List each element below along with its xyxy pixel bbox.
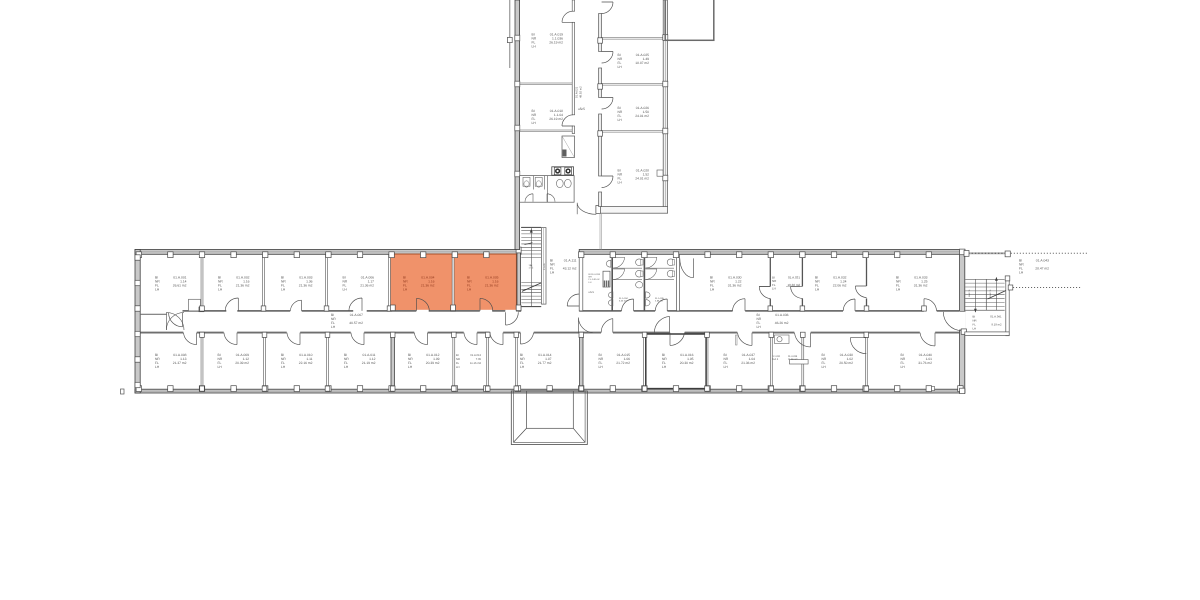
svg-text:NR: NR: [589, 276, 593, 279]
svg-text:20.39 m2: 20.39 m2: [426, 361, 440, 365]
svg-text:20.30 m2: 20.30 m2: [680, 361, 694, 365]
svg-text:01.A.031: 01.A.031: [788, 276, 800, 280]
svg-text:21.36 m2: 21.36 m2: [360, 284, 374, 288]
svg-text:LH: LH: [757, 325, 762, 329]
svg-text:21.36 m2: 21.36 m2: [421, 284, 435, 288]
svg-text:LH: LH: [662, 365, 667, 369]
svg-text:21.36 m2: 21.36 m2: [741, 361, 755, 365]
svg-text:LH: LH: [973, 327, 977, 331]
svg-text:LH: LH: [281, 288, 286, 292]
svg-text:26.19 m2: 26.19 m2: [549, 117, 563, 121]
svg-text:21.36 m2: 21.36 m2: [485, 284, 499, 288]
svg-text:LH: LH: [155, 288, 160, 292]
svg-text:LH: LH: [331, 325, 336, 329]
svg-text:01.A.013: 01.A.013: [470, 354, 481, 357]
svg-text:LH: LH: [467, 288, 472, 292]
svg-text:FL 4.40 m2: FL 4.40 m2: [589, 278, 601, 281]
svg-text:LH: LH: [218, 365, 223, 369]
svg-text:1.1.031: 1.1.031: [773, 355, 781, 358]
svg-text:26.61 m2: 26.61 m2: [173, 284, 187, 288]
svg-text:LH: LH: [532, 121, 537, 125]
svg-text:24.01 m2: 24.01 m2: [635, 177, 649, 181]
svg-text:u5c5: u5c5: [588, 291, 594, 294]
svg-text:22.06 m2: 22.06 m2: [833, 284, 847, 288]
svg-text:LH: LH: [155, 365, 160, 369]
svg-text:LH: LH: [618, 181, 623, 185]
svg-text:20.50 m2: 20.50 m2: [839, 361, 853, 365]
svg-text:LH: LH: [599, 365, 604, 369]
svg-text:LH: LH: [550, 271, 555, 275]
svg-text:21.36 m2: 21.36 m2: [299, 284, 313, 288]
svg-text:49.92 m2: 49.92 m2: [579, 86, 583, 98]
svg-text:BI 01.A.033: BI 01.A.033: [589, 273, 601, 276]
svg-text:LH: LH: [344, 365, 349, 369]
svg-text:21.77 m2: 21.77 m2: [538, 361, 552, 365]
svg-text:21.72 m2: 21.72 m2: [616, 361, 630, 365]
svg-text:LH: LH: [456, 366, 459, 369]
svg-text:LH: LH: [822, 365, 827, 369]
svg-text:22.16 m2: 22.16 m2: [299, 361, 313, 365]
svg-text:LH: LH: [618, 65, 623, 69]
svg-text:LH: LH: [896, 288, 901, 292]
svg-text:5x2.5: 5x2.5: [773, 358, 779, 361]
svg-text:LH: LH: [343, 288, 348, 292]
svg-text:26.19 m2: 26.19 m2: [549, 41, 563, 45]
svg-text:21.19 m2: 21.19 m2: [362, 361, 376, 365]
svg-text:21.36 m2: 21.36 m2: [236, 284, 250, 288]
svg-text:28.47 m2: 28.47 m2: [1035, 266, 1049, 270]
svg-text:01.A.043: 01.A.043: [1036, 258, 1049, 262]
svg-text:01.A.007: 01.A.007: [350, 313, 363, 317]
svg-text:20.39 m2: 20.39 m2: [235, 361, 249, 365]
svg-text:17.5: 17.5: [529, 267, 534, 270]
svg-text:NR: NR: [456, 358, 460, 361]
svg-text:11x17.5: 11x17.5: [968, 289, 971, 297]
svg-text:11.16 m2: 11.16 m2: [470, 362, 482, 365]
svg-text:43.12 m2: 43.12 m2: [563, 267, 577, 271]
svg-text:BI: BI: [456, 354, 459, 357]
svg-text:LH: LH: [1019, 270, 1024, 274]
svg-text:01.A.036: 01.A.036: [775, 313, 788, 317]
svg-text:LH: LH: [589, 281, 592, 284]
svg-text:LH: LH: [710, 288, 715, 292]
svg-text:LH: LH: [618, 118, 623, 122]
svg-text:LH: LH: [403, 288, 408, 292]
svg-text:7.05: 7.05: [476, 358, 482, 361]
svg-text:01.A.041: 01.A.041: [990, 315, 1002, 319]
svg-text:LH: LH: [815, 288, 820, 292]
svg-text:LH: LH: [408, 365, 413, 369]
svg-text:46.26 m2: 46.26 m2: [775, 321, 789, 325]
svg-text:LH: LH: [218, 288, 223, 292]
svg-text:24.01 m2: 24.01 m2: [635, 114, 649, 118]
svg-text:01.A.034: 01.A.034: [619, 297, 629, 300]
svg-text:LH: LH: [520, 365, 525, 369]
svg-text:11x17.5: 11x17.5: [989, 289, 992, 297]
svg-text:21.37 m2: 21.37 m2: [173, 361, 187, 365]
svg-text:LH: LH: [281, 365, 286, 369]
svg-text:01.A.039: 01.A.039: [788, 355, 798, 358]
svg-text:LH: LH: [772, 287, 776, 291]
svg-text:18.87 m2: 18.87 m2: [635, 61, 649, 65]
svg-text:01.A.111: 01.A.111: [564, 259, 577, 263]
svg-text:31.36 m2: 31.36 m2: [728, 284, 742, 288]
svg-text:31.76 m2: 31.76 m2: [918, 361, 932, 365]
svg-text:FL: FL: [456, 362, 460, 365]
svg-text:u5c5: u5c5: [578, 107, 585, 111]
svg-text:21x18: 21x18: [543, 263, 546, 270]
svg-text:LH: LH: [724, 365, 729, 369]
svg-text:40.57 m2: 40.57 m2: [349, 321, 363, 325]
svg-text:LH: LH: [532, 45, 537, 49]
svg-text:9.19 m2: 9.19 m2: [991, 323, 1002, 327]
svg-text:LH: LH: [901, 365, 906, 369]
svg-text:31.36 m2: 31.36 m2: [914, 284, 928, 288]
